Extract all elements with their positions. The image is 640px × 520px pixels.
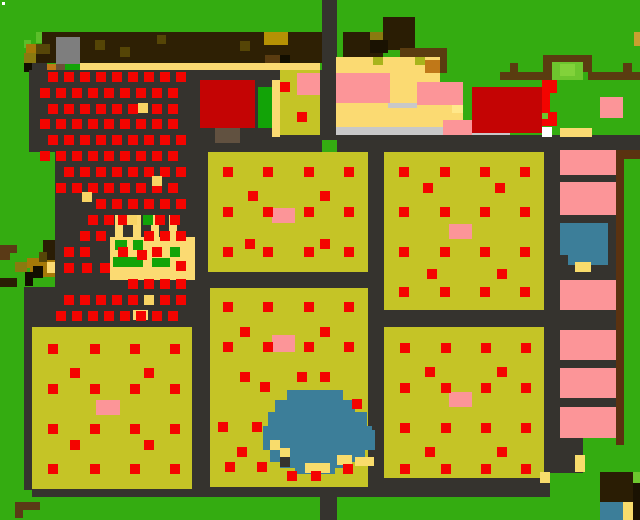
- crop-dot: [88, 151, 98, 161]
- crop-dot: [80, 167, 90, 177]
- crop-dot-sandDot: [144, 295, 154, 305]
- road: [560, 255, 568, 272]
- bush: [560, 64, 575, 76]
- crop-dot: [400, 423, 410, 433]
- flag-marker: [542, 113, 548, 119]
- crop-dot: [88, 119, 98, 129]
- crop-dot: [168, 183, 178, 193]
- sprout-row: [152, 258, 170, 267]
- crop-dot: [481, 383, 491, 393]
- crop-dot: [104, 183, 114, 193]
- crop-dot: [64, 247, 74, 257]
- crop-dot: [90, 344, 100, 354]
- flag-marker: [542, 93, 550, 113]
- crop-dot: [427, 269, 437, 279]
- crop-dot: [160, 135, 170, 145]
- crop-dot: [223, 342, 233, 352]
- crop-dot: [152, 104, 162, 114]
- crop-dot: [160, 72, 170, 82]
- crop-dot: [399, 167, 409, 177]
- crop-dot: [263, 167, 273, 177]
- dark-house: [633, 483, 640, 502]
- crop-dot: [155, 215, 165, 225]
- dirt-block: [215, 128, 240, 143]
- white-block: [542, 127, 552, 137]
- tree-trunk: [26, 44, 36, 53]
- dark-block: [280, 55, 290, 63]
- crop-dot: [72, 119, 82, 129]
- blossom-patch: [272, 335, 295, 352]
- crop-dot: [70, 440, 80, 450]
- crop-dot: [176, 295, 186, 305]
- crop-dot: [80, 135, 90, 145]
- crop-dot: [80, 104, 90, 114]
- flag-marker: [542, 80, 557, 93]
- pond-sand: [270, 440, 280, 450]
- fence: [616, 158, 624, 445]
- crop-dot: [248, 191, 258, 201]
- crop-dot: [120, 183, 130, 193]
- crop-dot: [104, 88, 114, 98]
- tree-trunk: [36, 44, 50, 54]
- crop-dot: [344, 342, 354, 352]
- crop-dot: [82, 263, 92, 273]
- crop-dot-sandDot: [138, 103, 148, 113]
- crop-dot: [130, 384, 140, 394]
- crop-dot: [130, 424, 140, 434]
- crop-dot: [400, 343, 410, 353]
- crop-dot: [170, 384, 180, 394]
- crop-dot: [104, 311, 114, 321]
- sprout: [133, 240, 143, 250]
- crop-dot: [64, 72, 74, 82]
- stone-block: [56, 37, 80, 64]
- crop-dot-red: [176, 261, 186, 271]
- pond-sand: [575, 262, 591, 272]
- roof-pink: [560, 368, 616, 398]
- crop-dot: [304, 302, 314, 312]
- crop-dot: [72, 183, 82, 193]
- stone-step: [388, 103, 417, 108]
- crop-dot: [343, 464, 353, 474]
- roof-pink: [560, 330, 616, 360]
- crop-dot: [48, 72, 58, 82]
- crop-dot: [80, 295, 90, 305]
- crop-dot: [160, 279, 170, 289]
- crop-dot: [100, 263, 110, 273]
- crop-dot: [176, 135, 186, 145]
- dark-house: [600, 472, 633, 502]
- crop-dot: [144, 440, 154, 450]
- crop-dot: [304, 247, 314, 257]
- crop-dot: [297, 372, 307, 382]
- blossom-patch: [297, 73, 320, 95]
- crop-dot-greenBright: [143, 215, 153, 225]
- crop-dot: [136, 311, 146, 321]
- crop-dot: [152, 311, 162, 321]
- crop-dot: [480, 287, 490, 297]
- crop-dot: [96, 231, 106, 241]
- crop-dot: [520, 247, 530, 257]
- crop-dot: [170, 344, 180, 354]
- crop-dot: [64, 104, 74, 114]
- crop-dot: [168, 311, 178, 321]
- crop-dot: [80, 72, 90, 82]
- sand-patch: [575, 455, 585, 472]
- crop-dot: [96, 135, 106, 145]
- crop-dot: [128, 295, 138, 305]
- crop-dot: [520, 207, 530, 217]
- crop-dot: [48, 424, 58, 434]
- log: [15, 502, 40, 510]
- sprout: [170, 247, 180, 257]
- crop-dot: [104, 119, 114, 129]
- crop-dot: [237, 447, 247, 457]
- crop-dot: [240, 327, 250, 337]
- crop-dot: [104, 215, 114, 225]
- road: [29, 287, 195, 327]
- crop-dot: [520, 287, 530, 297]
- crop-dot: [130, 344, 140, 354]
- crop-dot: [497, 367, 507, 377]
- road: [208, 272, 368, 288]
- crop-dot: [176, 167, 186, 177]
- crop-dot: [168, 104, 178, 114]
- roof-pink: [417, 82, 463, 105]
- crop-dot: [128, 135, 138, 145]
- crop-dot: [480, 247, 490, 257]
- crop-dot: [170, 464, 180, 474]
- crop-dot: [128, 104, 138, 114]
- crop-dot: [223, 247, 233, 257]
- log: [0, 278, 17, 287]
- crop-dot: [304, 342, 314, 352]
- soil-speck: [265, 55, 280, 63]
- crop-dot: [497, 447, 507, 457]
- red-building: [200, 80, 255, 128]
- crop-dot: [521, 343, 531, 353]
- dirt-path: [623, 63, 632, 72]
- tree-trunk: [24, 53, 36, 63]
- crop-dot: [223, 167, 233, 177]
- crop-dot: [40, 88, 50, 98]
- crop-dot: [48, 135, 58, 145]
- crop-dot: [152, 88, 162, 98]
- pond-sand: [355, 457, 374, 466]
- crop-dot: [128, 199, 138, 209]
- crop-dot: [56, 88, 66, 98]
- crop-dot: [480, 167, 490, 177]
- crop-dot: [40, 119, 50, 129]
- sand-patch: [452, 105, 463, 113]
- crop-dot: [96, 199, 106, 209]
- crop-dot: [223, 302, 233, 312]
- blossom-patch: [272, 208, 295, 223]
- crop-dot: [263, 302, 273, 312]
- crop-dot: [441, 423, 451, 433]
- crop-dot: [440, 247, 450, 257]
- tree-trunk: [0, 245, 10, 260]
- crop-dot: [441, 343, 451, 353]
- crop-dot: [176, 279, 186, 289]
- crop-dot: [144, 199, 154, 209]
- crop-dot: [120, 88, 130, 98]
- crop-dot: [176, 72, 186, 82]
- crop-dot: [481, 464, 491, 474]
- crop-dot: [112, 135, 122, 145]
- crop-dot: [440, 167, 450, 177]
- crop-dot: [136, 183, 146, 193]
- tree-trunk: [39, 252, 47, 262]
- dark-house: [633, 502, 640, 520]
- crop-dot: [168, 119, 178, 129]
- crop-dot: [320, 191, 330, 201]
- roof-pink: [336, 73, 390, 103]
- speck: [373, 57, 383, 65]
- crop-dot: [64, 263, 74, 273]
- tree-trunk: [10, 245, 17, 253]
- crop-dot: [88, 88, 98, 98]
- crop-dot: [136, 88, 146, 98]
- sand-patch: [47, 262, 55, 273]
- crop-dot: [112, 104, 122, 114]
- crop-dot: [344, 247, 354, 257]
- crop-dot: [40, 151, 50, 161]
- grass-block: [30, 183, 55, 238]
- red-building: [472, 87, 542, 133]
- crop-dot: [64, 167, 74, 177]
- crop-dot: [56, 151, 66, 161]
- crop-dot: [48, 384, 58, 394]
- crop-dot: [521, 464, 531, 474]
- crop-dot: [104, 151, 114, 161]
- pond: [330, 430, 375, 450]
- blossom-patch: [96, 400, 120, 415]
- sand-patch: [560, 128, 592, 137]
- tree-trunk: [15, 262, 27, 272]
- crop-dot-sandDot: [127, 215, 137, 225]
- crop-dot: [128, 72, 138, 82]
- road: [320, 487, 337, 520]
- soil-speck: [240, 41, 250, 51]
- crop-dot: [112, 72, 122, 82]
- dirt-path: [510, 63, 518, 72]
- crop-dot: [400, 383, 410, 393]
- log: [15, 510, 23, 518]
- crop-dot: [399, 287, 409, 297]
- crop-dot: [72, 311, 82, 321]
- crop-dot: [440, 287, 450, 297]
- crop-dot: [320, 372, 330, 382]
- crop-dot: [400, 464, 410, 474]
- crop-dot-sandDot: [152, 176, 162, 186]
- roof-pink: [560, 280, 616, 310]
- blossom-patch: [600, 97, 623, 118]
- crop-dot: [176, 231, 186, 241]
- soil-speck: [120, 47, 130, 57]
- roof-pink: [443, 120, 472, 135]
- crop-dot: [218, 422, 228, 432]
- pond-rock: [280, 457, 290, 467]
- crop-dot: [96, 104, 106, 114]
- dirt-path: [583, 63, 592, 72]
- tree-trunk: [25, 272, 33, 286]
- crop-dot: [320, 239, 330, 249]
- crop-dot: [311, 471, 321, 481]
- tree-trunk: [33, 266, 43, 278]
- crop-dot: [423, 183, 433, 193]
- crop-dot: [112, 199, 122, 209]
- dirt-path: [543, 63, 552, 80]
- crop-dot: [136, 151, 146, 161]
- crop-dot: [90, 424, 100, 434]
- crop-dot: [425, 367, 435, 377]
- crop-dot: [64, 295, 74, 305]
- crop-dot: [168, 88, 178, 98]
- crop-dot: [96, 295, 106, 305]
- crop-dot: [263, 247, 273, 257]
- crop-dot: [245, 239, 255, 249]
- roof-pink: [560, 407, 616, 438]
- crop-dot: [120, 119, 130, 129]
- crop-dot: [160, 231, 170, 241]
- crop-dot: [520, 167, 530, 177]
- crop-dot: [287, 471, 297, 481]
- crop-dot: [72, 88, 82, 98]
- crop-dot: [80, 231, 90, 241]
- crop-dot: [56, 119, 66, 129]
- crop-dot-red: [118, 247, 128, 257]
- crop-dot: [96, 167, 106, 177]
- crop-dot: [144, 279, 154, 289]
- road: [322, 0, 337, 140]
- crop-dot: [320, 327, 330, 337]
- crop-dot: [223, 207, 233, 217]
- roof-pink: [560, 182, 616, 215]
- crop-dot: [263, 207, 273, 217]
- crop-dot-red: [152, 247, 162, 257]
- crop-dot: [96, 72, 106, 82]
- crop-dot: [144, 231, 154, 241]
- crop-dot: [144, 72, 154, 82]
- crop-dot: [144, 368, 154, 378]
- crop-dot: [152, 119, 162, 129]
- roof-pink: [560, 150, 616, 175]
- crop-dot: [120, 151, 130, 161]
- dirt-path: [500, 72, 543, 80]
- crop-dot: [441, 383, 451, 393]
- grass-patch: [633, 472, 640, 483]
- crop-dot: [88, 215, 98, 225]
- crop-dot: [144, 135, 154, 145]
- crop-dot: [440, 207, 450, 217]
- door-block: [425, 60, 440, 73]
- crop-dot: [56, 183, 66, 193]
- crop-dot: [425, 447, 435, 457]
- crop-dot: [297, 112, 307, 122]
- crop-dot: [112, 295, 122, 305]
- crop-dot: [90, 384, 100, 394]
- crop-dot-red: [137, 250, 147, 260]
- crop-dot: [480, 207, 490, 217]
- crop-dot-sandDot: [82, 192, 92, 202]
- road: [384, 310, 544, 327]
- crop-dot: [112, 167, 122, 177]
- crop-dot: [90, 464, 100, 474]
- crop-dot: [521, 383, 531, 393]
- blossom-patch: [449, 392, 472, 407]
- crop-dot: [170, 424, 180, 434]
- crop-dot: [344, 167, 354, 177]
- sand-patch: [623, 502, 633, 520]
- crop-dot: [80, 247, 90, 257]
- crop-dot: [128, 279, 138, 289]
- crop-dot: [48, 104, 58, 114]
- crop-dot: [160, 199, 170, 209]
- soil-speck: [95, 40, 105, 50]
- crop-dot: [176, 199, 186, 209]
- crop-dot: [481, 343, 491, 353]
- sand-patch: [634, 32, 640, 46]
- grass-strip: [258, 87, 272, 128]
- sand-patch: [540, 472, 550, 483]
- tree-canopy: [370, 40, 388, 53]
- crop-dot: [304, 207, 314, 217]
- blossom-patch: [449, 224, 472, 239]
- crop-dot: [344, 207, 354, 217]
- crop-dot: [497, 269, 507, 279]
- crop-dot: [88, 311, 98, 321]
- crop-dot: [240, 372, 250, 382]
- crop-dot: [521, 423, 531, 433]
- crop-dot: [64, 135, 74, 145]
- crop-dot: [304, 167, 314, 177]
- farm-map[interactable]: [0, 0, 640, 520]
- crop-dot: [260, 382, 270, 392]
- crop-dot: [72, 151, 82, 161]
- crop-dot: [48, 344, 58, 354]
- crop-dot: [257, 462, 267, 472]
- crop-dot: [441, 464, 451, 474]
- crop-dot: [168, 151, 178, 161]
- crop-dot: [170, 215, 180, 225]
- crop-dot: [225, 462, 235, 472]
- crop-dot: [70, 368, 80, 378]
- map-marker-dot: [2, 2, 5, 5]
- crop-dot: [56, 311, 66, 321]
- crop-dot: [160, 295, 170, 305]
- hay-block: [264, 32, 288, 45]
- crop-dot: [481, 423, 491, 433]
- crop-dot: [495, 183, 505, 193]
- sand-strip: [272, 80, 280, 137]
- crop-dot: [252, 422, 262, 432]
- crop-dot: [399, 207, 409, 217]
- crop-dot: [48, 464, 58, 474]
- water: [600, 502, 623, 520]
- speck: [415, 57, 425, 65]
- crop-dot: [344, 302, 354, 312]
- crop-dot: [120, 311, 130, 321]
- soil-speck: [157, 35, 166, 44]
- crop-dot: [136, 119, 146, 129]
- crop-dot: [280, 82, 290, 92]
- crop-dot: [399, 247, 409, 257]
- dirt-path: [588, 72, 640, 80]
- crop-dot: [128, 167, 138, 177]
- tree-trunk: [36, 54, 50, 63]
- crop-dot: [152, 151, 162, 161]
